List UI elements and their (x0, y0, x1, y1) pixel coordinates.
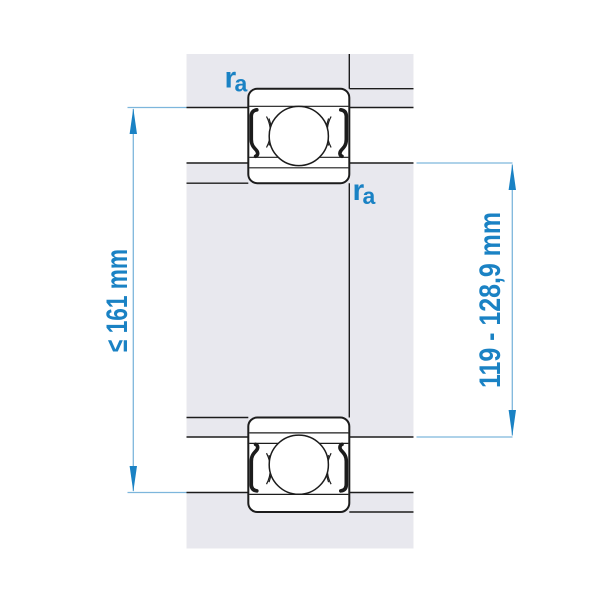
fillet-label-top-subscript: a (235, 71, 248, 97)
right-dimension-label: 119 - 128,9 mm (474, 212, 507, 388)
bearing-section-bottom (248, 418, 349, 513)
drawing-canvas: ≤ 161 mm 119 - 128,9 mm r a r a (0, 0, 600, 600)
bearing-section-top (248, 89, 349, 184)
fillet-label-bottom-subscript: a (363, 183, 376, 209)
bearing-mounting-drawing: ≤ 161 mm 119 - 128,9 mm r a r a (0, 0, 600, 600)
left-dimension-label: ≤ 161 mm (101, 249, 134, 352)
